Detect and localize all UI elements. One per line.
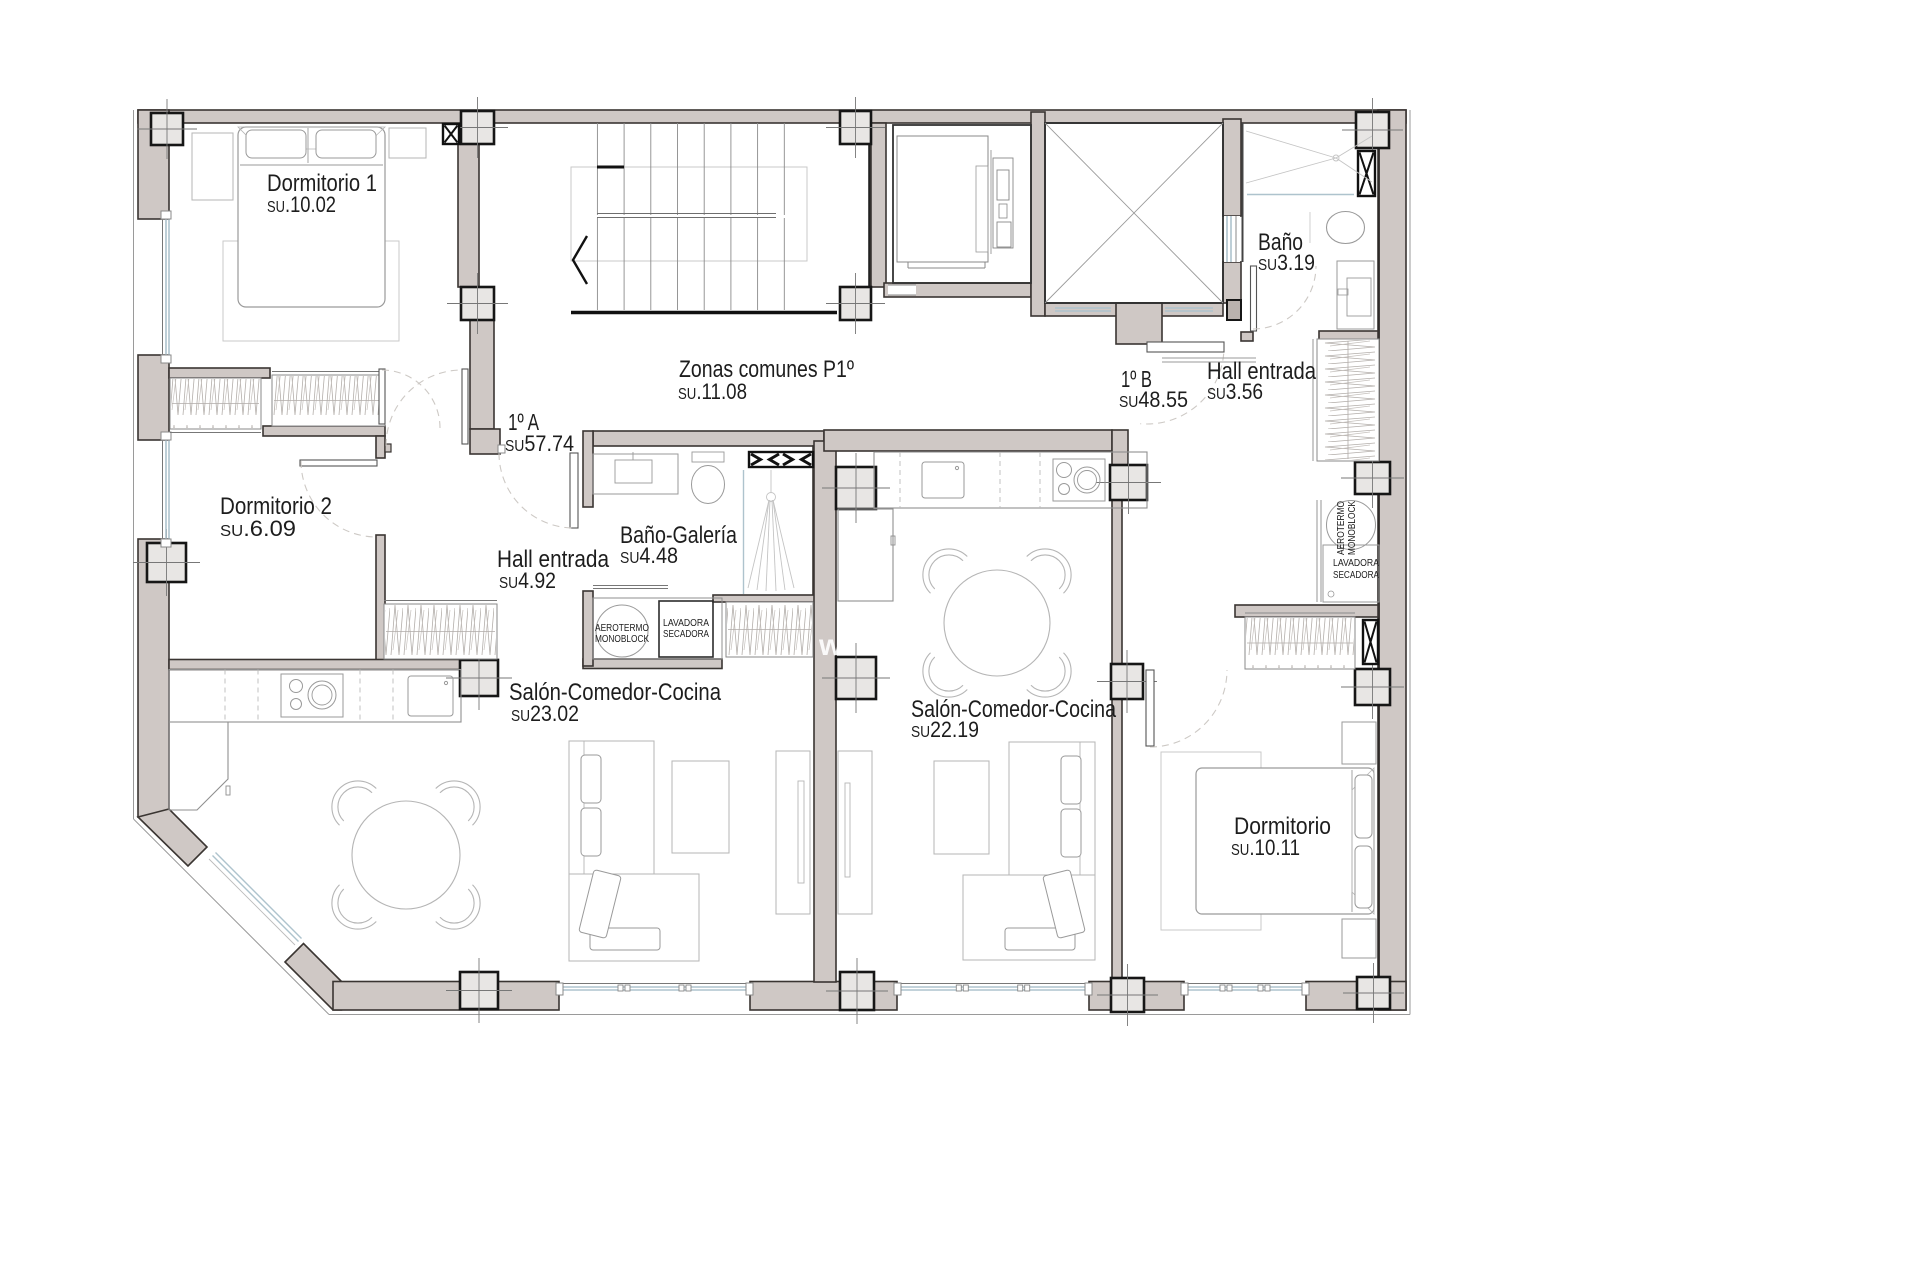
svg-text:w: w: [818, 629, 843, 662]
svg-text:Baño-Galería: Baño-Galería: [620, 522, 738, 549]
svg-text:MONOBLOCK: MONOBLOCK: [1347, 501, 1358, 555]
svg-text:SECADORA: SECADORA: [1333, 570, 1379, 581]
svg-text:LAVADORA: LAVADORA: [663, 618, 709, 629]
svg-text:MONOBLOCK: MONOBLOCK: [595, 634, 649, 645]
svg-text:AEROTERMO: AEROTERMO: [1336, 501, 1347, 555]
svg-text:LAVADORA: LAVADORA: [1333, 558, 1379, 569]
svg-text:SECADORA: SECADORA: [663, 629, 709, 640]
svg-text:AEROTERMO: AEROTERMO: [595, 623, 649, 634]
